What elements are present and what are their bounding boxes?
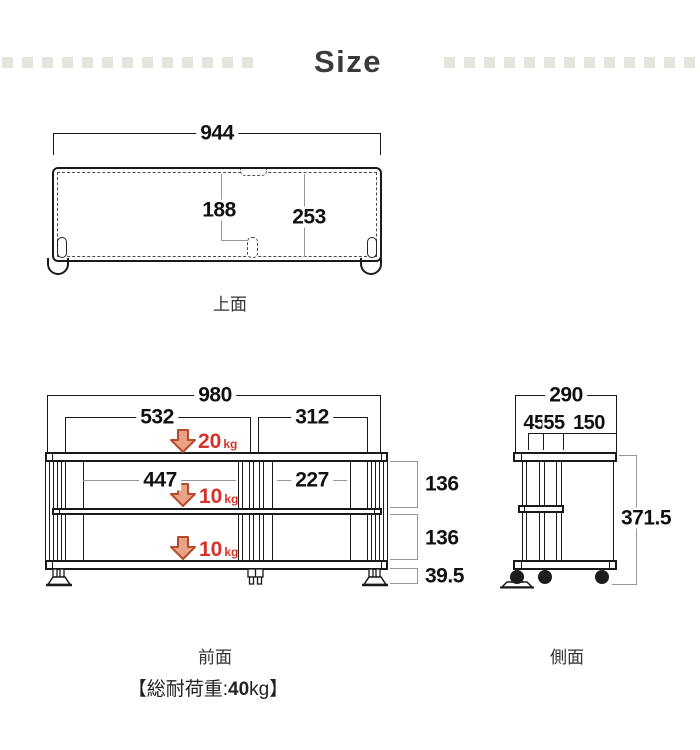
front-top-board bbox=[45, 452, 388, 462]
total-load-note: 【総耐荷重:40kg】 bbox=[128, 674, 289, 701]
side-casters-icon bbox=[500, 568, 625, 590]
front-view-right-section-label: 312 bbox=[291, 407, 333, 428]
dim-tick bbox=[258, 417, 259, 452]
top-view-back-slot-dashed bbox=[240, 169, 267, 176]
front-view-left-shelf-label: 447 bbox=[139, 470, 181, 491]
dim-tick bbox=[380, 395, 381, 452]
load-unit: kg bbox=[224, 545, 238, 559]
top-view-slot-offset-label: 188 bbox=[198, 200, 240, 221]
side-view-height-label: 371.5 bbox=[617, 508, 675, 529]
bracket-line bbox=[390, 568, 418, 569]
board-cap bbox=[521, 452, 522, 462]
bracket-line bbox=[612, 584, 637, 585]
side-view-caption: 側面 bbox=[550, 648, 584, 668]
decor-dotted-row-right bbox=[444, 57, 695, 68]
bracket-line bbox=[390, 559, 418, 560]
dim-tick bbox=[250, 417, 251, 452]
dim-tick bbox=[616, 395, 617, 452]
board-cap bbox=[381, 452, 382, 462]
size-diagram: Size 944 188 253 上面 980 532 312 bbox=[0, 0, 700, 750]
bracket-line bbox=[417, 514, 418, 559]
dim-tick bbox=[528, 433, 529, 450]
top-view-width-label: 944 bbox=[196, 123, 238, 144]
load-unit: kg bbox=[224, 492, 238, 506]
load-value: 10 bbox=[199, 485, 222, 508]
load-unit: kg bbox=[223, 437, 237, 451]
front-view-left-section-label: 532 bbox=[136, 407, 178, 428]
bracket-line bbox=[417, 568, 418, 583]
bracket-line bbox=[390, 514, 418, 515]
front-view-right-shelf-label: 227 bbox=[291, 470, 333, 491]
total-load-prefix: 【総耐荷重: bbox=[128, 679, 228, 700]
top-view-slot-left bbox=[57, 237, 67, 258]
board-cap bbox=[59, 508, 60, 515]
front-leg bbox=[383, 462, 388, 560]
load-arrow-icon bbox=[169, 536, 197, 560]
dim-tick bbox=[543, 433, 544, 450]
side-view-segment3-label: 150 bbox=[572, 413, 606, 433]
dim-tick bbox=[563, 433, 564, 450]
side-view-segment2-label: 55 bbox=[542, 413, 565, 433]
front-adjuster-foot-right-icon bbox=[361, 568, 389, 587]
top-view-caption: 上面 bbox=[213, 295, 247, 315]
load-arrow-icon bbox=[169, 429, 197, 453]
front-middle-shelf bbox=[52, 508, 382, 515]
top-view-slot-center bbox=[247, 237, 258, 258]
bracket-line bbox=[390, 461, 418, 462]
total-load-value: 40 bbox=[228, 679, 249, 700]
bracket-line bbox=[417, 461, 418, 507]
board-cap bbox=[52, 452, 53, 462]
front-adjuster-foot-left-icon bbox=[45, 568, 73, 587]
load-label-middle: 10kg bbox=[199, 486, 238, 507]
side-view-depth-label: 290 bbox=[545, 385, 587, 406]
front-view-leg-height-label: 39.5 bbox=[423, 566, 466, 587]
side-top-board bbox=[513, 452, 617, 462]
top-view-foot-left bbox=[47, 258, 69, 275]
side-back-edge bbox=[613, 462, 614, 560]
top-view-depth-label: 253 bbox=[288, 207, 330, 228]
top-view-foot-right bbox=[360, 258, 382, 275]
load-value: 20 bbox=[198, 430, 221, 453]
dim-tick bbox=[380, 133, 381, 155]
bracket-line bbox=[619, 455, 637, 456]
top-view-slot-right bbox=[367, 237, 377, 258]
front-view-caption: 前面 bbox=[198, 648, 232, 668]
front-leg bbox=[45, 462, 50, 560]
dim-tick bbox=[367, 417, 368, 452]
total-load-unit: kg bbox=[249, 679, 269, 700]
dim-tick bbox=[47, 395, 48, 452]
board-cap bbox=[524, 505, 525, 513]
load-label-bottom: 10kg bbox=[199, 539, 238, 560]
page-title: Size bbox=[314, 46, 382, 77]
bracket-line bbox=[390, 507, 418, 508]
total-load-suffix: 】 bbox=[269, 679, 288, 700]
decor-dotted-row-left bbox=[2, 57, 253, 68]
load-value: 10 bbox=[199, 538, 222, 561]
load-label-top: 20kg bbox=[198, 431, 237, 452]
front-bottom-board bbox=[45, 560, 388, 570]
front-view-opening-top-label: 136 bbox=[423, 474, 461, 495]
front-view-width-label: 980 bbox=[194, 385, 236, 406]
dim-tick bbox=[515, 395, 516, 452]
front-view-opening-bottom-label: 136 bbox=[423, 528, 461, 549]
board-cap bbox=[374, 508, 375, 515]
leader-188-h bbox=[221, 240, 248, 241]
front-caster-foot-center-icon bbox=[245, 568, 267, 587]
bracket-line bbox=[390, 583, 418, 584]
dim-tick bbox=[53, 133, 54, 155]
dim-tick bbox=[65, 417, 66, 452]
